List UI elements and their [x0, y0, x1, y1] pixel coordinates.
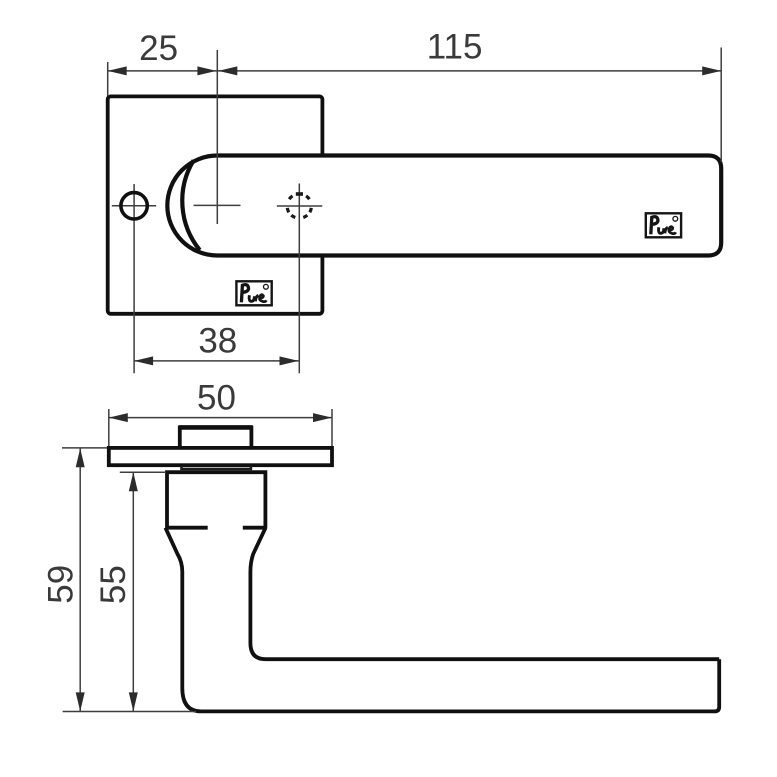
- svg-text:38: 38: [198, 321, 237, 360]
- svg-text:55: 55: [94, 565, 133, 604]
- svg-text:50: 50: [197, 379, 236, 418]
- svg-text:25: 25: [139, 29, 178, 68]
- svg-text:115: 115: [427, 28, 483, 67]
- svg-text:59: 59: [42, 565, 81, 604]
